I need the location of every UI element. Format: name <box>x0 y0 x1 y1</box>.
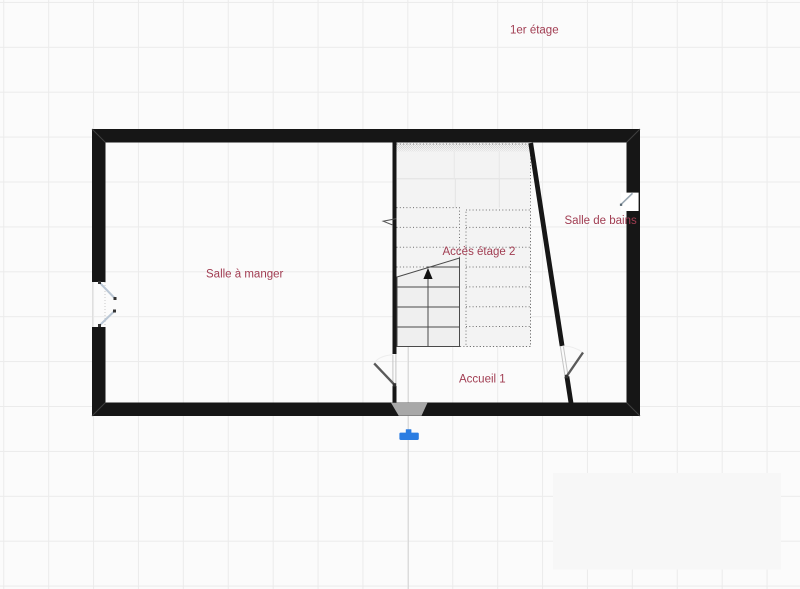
svg-text:Accès étage 2: Accès étage 2 <box>443 246 516 258</box>
svg-text:1er étage: 1er étage <box>510 25 559 37</box>
svg-text:Salle de bains: Salle de bains <box>565 215 637 227</box>
svg-text:Accueil 1: Accueil 1 <box>459 374 506 386</box>
svg-text:Salle à manger: Salle à manger <box>206 269 284 281</box>
